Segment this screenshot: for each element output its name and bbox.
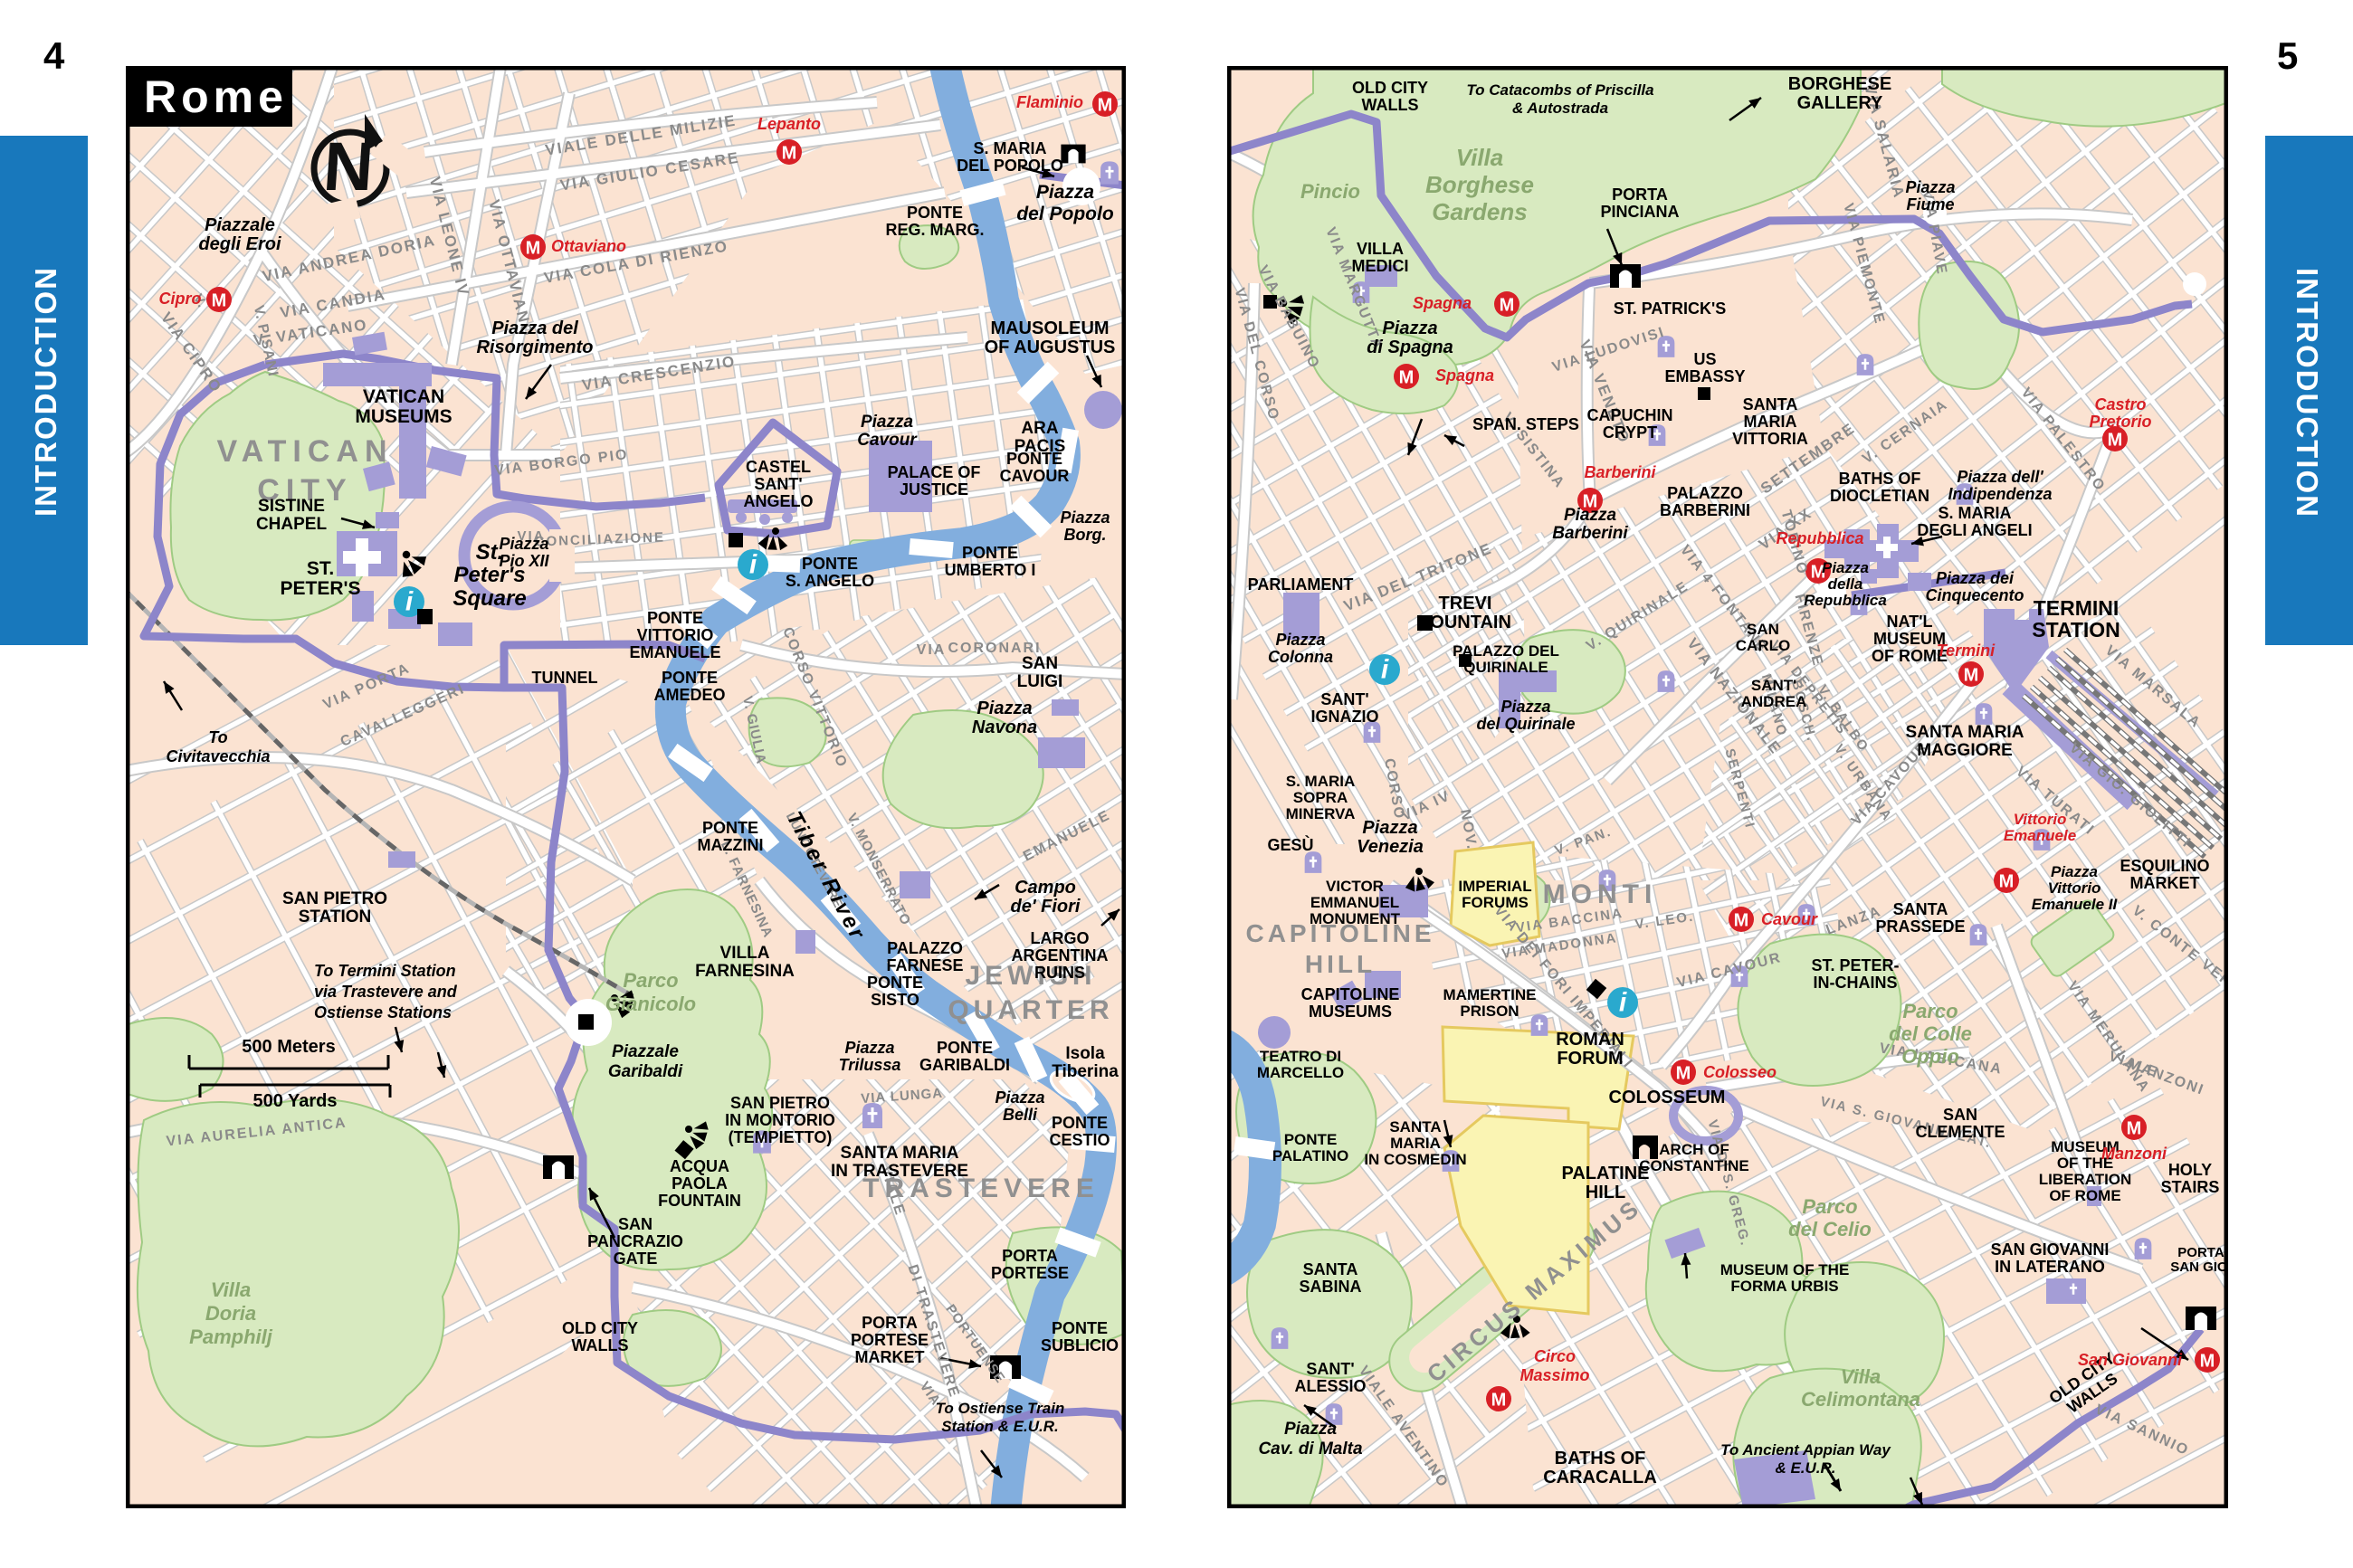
- svg-text:M: M: [1098, 95, 1113, 115]
- svg-text:OLD CITY: OLD CITY: [562, 1319, 638, 1337]
- svg-text:RUINS: RUINS: [1034, 964, 1085, 982]
- svg-text:VICTOR: VICTOR: [1326, 878, 1384, 895]
- svg-text:M: M: [1399, 367, 1415, 387]
- svg-text:MONTI: MONTI: [1543, 879, 1658, 909]
- svg-text:PALAZZO: PALAZZO: [1667, 484, 1743, 502]
- svg-text:S. ANGELO: S. ANGELO: [786, 572, 874, 590]
- svg-text:Piazza: Piazza: [1284, 1420, 1338, 1439]
- svg-text:SISTINE: SISTINE: [258, 497, 325, 516]
- svg-text:ANGELO: ANGELO: [743, 492, 813, 510]
- svg-text:SANTA MARIA: SANTA MARIA: [841, 1144, 959, 1163]
- svg-text:ST. PATRICK'S: ST. PATRICK'S: [1614, 299, 1727, 318]
- svg-text:PINCIANA: PINCIANA: [1600, 203, 1679, 221]
- svg-text:IMPERIAL: IMPERIAL: [1458, 878, 1531, 895]
- svg-text:PONTE: PONTE: [662, 669, 718, 687]
- svg-text:del Quirinale: del Quirinale: [1476, 715, 1575, 733]
- svg-text:Piazza: Piazza: [1822, 559, 1869, 576]
- svg-text:Cav. di Malta: Cav. di Malta: [1258, 1440, 1363, 1459]
- svg-text:PONTE: PONTE: [962, 544, 1018, 562]
- svg-text:Piazza dei: Piazza dei: [1936, 569, 2015, 587]
- svg-text:CAVOUR: CAVOUR: [1000, 467, 1070, 485]
- svg-text:SANTA: SANTA: [1893, 900, 1948, 918]
- svg-text:Termini: Termini: [1937, 641, 1996, 660]
- svg-text:via Trastevere and: via Trastevere and: [314, 983, 458, 1001]
- svg-text:Rome: Rome: [144, 71, 288, 122]
- svg-text:CAPUCHIN: CAPUCHIN: [1586, 406, 1672, 424]
- svg-text:Parco: Parco: [1902, 1000, 1958, 1022]
- svg-text:GALLERY: GALLERY: [1797, 93, 1883, 113]
- svg-text:PALAZZO: PALAZZO: [887, 939, 963, 957]
- svg-text:Ottaviano: Ottaviano: [551, 237, 626, 255]
- svg-text:Campo: Campo: [1015, 878, 1076, 898]
- svg-text:MUSEUMS: MUSEUMS: [355, 406, 452, 427]
- svg-text:GARIBALDI: GARIBALDI: [919, 1056, 1010, 1074]
- svg-text:VIA: VIA: [917, 642, 947, 658]
- svg-text:Pretorio: Pretorio: [2089, 413, 2151, 431]
- svg-text:AMEDEO: AMEDEO: [653, 686, 725, 704]
- svg-text:i: i: [1381, 654, 1389, 684]
- svg-text:i: i: [749, 549, 757, 579]
- svg-text:Piazzale: Piazzale: [612, 1042, 679, 1061]
- svg-text:M: M: [1999, 871, 2015, 891]
- svg-text:PALACE OF: PALACE OF: [888, 463, 981, 481]
- svg-text:LIBERATION: LIBERATION: [2039, 1171, 2132, 1188]
- svg-text:Piazza: Piazza: [995, 1088, 1044, 1107]
- svg-text:MAZZINI: MAZZINI: [698, 836, 764, 854]
- svg-text:PONTE: PONTE: [1284, 1131, 1338, 1148]
- svg-text:IN COSMEDIN: IN COSMEDIN: [1364, 1151, 1466, 1168]
- svg-text:STAIRS: STAIRS: [2161, 1178, 2220, 1196]
- svg-text:Isola: Isola: [1065, 1044, 1105, 1063]
- svg-text:SANT': SANT': [1320, 690, 1368, 708]
- svg-text:Borg.: Borg.: [1064, 526, 1107, 544]
- svg-text:IN LATERANO: IN LATERANO: [1995, 1258, 2105, 1276]
- svg-text:PORTA: PORTA: [862, 1314, 918, 1332]
- svg-text:Piazza: Piazza: [2051, 863, 2098, 880]
- svg-text:CESTIO: CESTIO: [1049, 1131, 1110, 1149]
- svg-text:i: i: [1619, 987, 1627, 1017]
- svg-text:ALESSIO: ALESSIO: [1294, 1377, 1366, 1395]
- svg-text:REG. MARG.: REG. MARG.: [885, 221, 984, 239]
- svg-text:FARNESE: FARNESE: [886, 956, 963, 974]
- svg-text:Piazza: Piazza: [1500, 698, 1550, 716]
- svg-text:FORUM: FORUM: [1557, 1049, 1623, 1069]
- svg-text:ST. PETER-: ST. PETER-: [1811, 956, 1899, 974]
- svg-text:PARLIAMENT: PARLIAMENT: [1248, 575, 1354, 594]
- svg-text:CHAPEL: CHAPEL: [256, 515, 328, 534]
- svg-text:Garibaldi: Garibaldi: [608, 1062, 683, 1081]
- svg-text:Gianicolo: Gianicolo: [605, 993, 696, 1015]
- svg-text:PETER'S: PETER'S: [280, 578, 360, 599]
- svg-text:To Ostiense Train: To Ostiense Train: [936, 1400, 1065, 1417]
- svg-text:MINERVA: MINERVA: [1286, 805, 1356, 822]
- svg-text:Cipro: Cipro: [159, 290, 202, 308]
- svg-text:US: US: [1693, 350, 1716, 368]
- svg-text:S. MARIA: S. MARIA: [1286, 773, 1356, 790]
- svg-text:SAN GIO.: SAN GIO.: [2170, 1259, 2228, 1275]
- svg-text:OF ROME: OF ROME: [2049, 1187, 2120, 1204]
- svg-text:(TEMPIETTO): (TEMPIETTO): [729, 1128, 833, 1146]
- svg-text:VILLA: VILLA: [1357, 240, 1404, 258]
- svg-text:VATICAN: VATICAN: [363, 386, 444, 407]
- svg-text:DEGLI ANGELI: DEGLI ANGELI: [1917, 521, 2032, 539]
- svg-text:MARKET: MARKET: [855, 1348, 925, 1366]
- svg-text:SAN PIETRO: SAN PIETRO: [282, 889, 387, 908]
- svg-text:Repubblica: Repubblica: [1804, 592, 1887, 609]
- svg-text:Villa: Villa: [211, 1278, 251, 1301]
- svg-text:BATHS OF: BATHS OF: [1555, 1449, 1646, 1468]
- svg-text:STATION: STATION: [299, 908, 372, 927]
- svg-text:TEATRO DI: TEATRO DI: [1260, 1048, 1341, 1065]
- svg-text:SAN PIETRO: SAN PIETRO: [730, 1094, 830, 1112]
- svg-text:IN MONTORIO: IN MONTORIO: [725, 1111, 835, 1129]
- svg-text:PORTESE: PORTESE: [851, 1331, 929, 1349]
- svg-text:500 Meters: 500 Meters: [242, 1037, 335, 1057]
- svg-text:M: M: [1676, 1063, 1691, 1083]
- svg-text:S. MARIA: S. MARIA: [1939, 504, 2012, 522]
- svg-text:VITTORIO: VITTORIO: [637, 626, 714, 644]
- svg-text:SANT': SANT': [1751, 677, 1796, 694]
- svg-text:SANTA MARIA: SANTA MARIA: [1906, 723, 2024, 742]
- svg-text:Vittorio: Vittorio: [2014, 811, 2067, 828]
- svg-text:GESÙ: GESÙ: [1267, 835, 1313, 854]
- svg-text:PONTE: PONTE: [1052, 1319, 1108, 1337]
- svg-text:Cavour: Cavour: [857, 431, 918, 450]
- svg-text:Repubblica: Repubblica: [1776, 529, 1863, 547]
- svg-text:Vittorio: Vittorio: [2048, 879, 2101, 897]
- svg-text:Piazza: Piazza: [861, 413, 914, 432]
- svg-text:CARACALLA: CARACALLA: [1543, 1468, 1657, 1487]
- svg-text:PAOLA: PAOLA: [672, 1174, 728, 1193]
- svg-text:SANTA: SANTA: [1743, 395, 1798, 413]
- svg-text:della: della: [1828, 575, 1863, 593]
- svg-text:Tiberina: Tiberina: [1052, 1062, 1119, 1081]
- svg-text:PONTE: PONTE: [867, 974, 923, 992]
- svg-text:MUSEUMS: MUSEUMS: [1309, 1003, 1392, 1021]
- svg-text:SANT': SANT': [754, 475, 802, 493]
- svg-text:IGNAZIO: IGNAZIO: [1311, 708, 1379, 726]
- svg-text:M: M: [1500, 295, 1515, 315]
- svg-text:OLD CITY: OLD CITY: [1352, 79, 1428, 97]
- svg-text:Pincio: Pincio: [1300, 180, 1360, 203]
- svg-text:PALATINO: PALATINO: [1272, 1147, 1348, 1164]
- svg-text:TUNNEL: TUNNEL: [532, 669, 598, 687]
- svg-text:PONTE: PONTE: [937, 1039, 993, 1057]
- svg-text:Pamphilj: Pamphilj: [189, 1326, 273, 1348]
- svg-text:EMANUELE: EMANUELE: [629, 643, 720, 661]
- svg-text:SOPRA: SOPRA: [1293, 789, 1348, 806]
- svg-text:Pio XII: Pio XII: [499, 552, 549, 570]
- svg-text:FOUNTAIN: FOUNTAIN: [658, 1192, 741, 1210]
- svg-text:PRASSEDE: PRASSEDE: [1875, 917, 1965, 936]
- svg-text:Barberini: Barberini: [1552, 524, 1628, 543]
- svg-text:Manzoni: Manzoni: [2101, 1145, 2167, 1163]
- svg-text:Venezia: Venezia: [1357, 837, 1424, 857]
- svg-text:ANDREA: ANDREA: [1741, 693, 1807, 710]
- svg-text:M: M: [1491, 1390, 1507, 1410]
- svg-text:MARIA: MARIA: [1744, 413, 1797, 431]
- svg-text:SAN: SAN: [618, 1215, 653, 1233]
- svg-text:Fiume: Fiume: [1906, 195, 1954, 214]
- svg-text:Villa: Villa: [1841, 1365, 1881, 1388]
- svg-text:FOUNTAIN: FOUNTAIN: [1419, 613, 1511, 632]
- svg-text:PONTE: PONTE: [802, 555, 858, 573]
- svg-text:Station & E.U.R.: Station & E.U.R.: [941, 1418, 1058, 1435]
- svg-text:OF AUGUSTUS: OF AUGUSTUS: [985, 337, 1116, 357]
- svg-text:& E.U.R.: & E.U.R.: [1775, 1459, 1835, 1477]
- svg-text:SAN: SAN: [1747, 621, 1779, 638]
- svg-text:CARLO: CARLO: [1736, 637, 1790, 654]
- svg-text:DIOCLETIAN: DIOCLETIAN: [1830, 487, 1929, 505]
- svg-text:SPAN. STEPS: SPAN. STEPS: [1472, 415, 1579, 433]
- svg-text:JUSTICE: JUSTICE: [900, 480, 968, 499]
- svg-text:Risorgimento: Risorgimento: [477, 337, 594, 357]
- svg-text:Spagna: Spagna: [1413, 294, 1472, 312]
- svg-text:CLEMENTE: CLEMENTE: [1916, 1123, 2005, 1141]
- svg-text:PONTE: PONTE: [1052, 1114, 1108, 1132]
- svg-text:ROMAN: ROMAN: [1556, 1030, 1624, 1050]
- svg-text:To: To: [208, 728, 227, 746]
- svg-text:degli Eroi: degli Eroi: [198, 234, 281, 254]
- svg-text:PALATINE: PALATINE: [1561, 1164, 1649, 1183]
- svg-text:PONTE: PONTE: [907, 204, 963, 222]
- svg-text:PRISON: PRISON: [1460, 1003, 1519, 1020]
- svg-text:Emanuele: Emanuele: [2004, 827, 2076, 844]
- svg-text:PONTE: PONTE: [647, 609, 703, 627]
- svg-text:SISTO: SISTO: [871, 991, 919, 1009]
- svg-text:M: M: [526, 238, 541, 258]
- svg-text:CASTEL: CASTEL: [746, 458, 811, 476]
- svg-text:SANT': SANT': [1306, 1360, 1354, 1378]
- svg-text:WALLS: WALLS: [1362, 96, 1419, 114]
- svg-text:MONUMENT: MONUMENT: [1310, 910, 1401, 927]
- svg-text:Oppio: Oppio: [1901, 1045, 1959, 1068]
- svg-text:EMBASSY: EMBASSY: [1664, 367, 1745, 385]
- svg-text:MARKET: MARKET: [2130, 874, 2200, 892]
- svg-text:Civitavecchia: Civitavecchia: [166, 747, 270, 765]
- svg-text:SAN: SAN: [1022, 654, 1058, 673]
- svg-text:Piazzale: Piazzale: [205, 215, 275, 235]
- svg-text:i: i: [405, 586, 414, 616]
- svg-text:del Colle: del Colle: [1889, 1022, 1972, 1045]
- svg-text:LARGO: LARGO: [1031, 929, 1090, 947]
- svg-text:LUIGI: LUIGI: [1017, 672, 1063, 691]
- svg-text:ST.: ST.: [307, 558, 334, 579]
- svg-text:DEL POPOLO: DEL POPOLO: [957, 157, 1063, 175]
- svg-text:PORTA: PORTA: [1002, 1247, 1058, 1265]
- svg-text:SABINA: SABINA: [1299, 1278, 1361, 1296]
- svg-text:MAGGIORE: MAGGIORE: [1917, 741, 2013, 760]
- svg-text:Barberini: Barberini: [1584, 463, 1656, 481]
- svg-text:Piazza: Piazza: [976, 698, 1032, 718]
- svg-text:SANTA: SANTA: [1303, 1260, 1358, 1278]
- svg-text:MUSEUM OF THE: MUSEUM OF THE: [1720, 1261, 1850, 1278]
- svg-text:UMBERTO I: UMBERTO I: [945, 561, 1036, 579]
- svg-text:IN TRASTEVERE: IN TRASTEVERE: [831, 1162, 968, 1181]
- svg-text:& Autostrada: & Autostrada: [1512, 100, 1608, 117]
- svg-text:Cavour: Cavour: [1761, 910, 1818, 928]
- svg-text:MUSEUM: MUSEUM: [1873, 630, 1946, 648]
- svg-text:M: M: [1734, 910, 1749, 930]
- svg-text:Piazza del: Piazza del: [491, 318, 578, 338]
- svg-text:Emanuele II: Emanuele II: [2032, 896, 2119, 913]
- svg-text:VITTORIA: VITTORIA: [1732, 430, 1808, 448]
- svg-text:ARGENTINA: ARGENTINA: [1012, 946, 1109, 965]
- svg-text:QUARTER: QUARTER: [948, 995, 1113, 1025]
- svg-text:Doria: Doria: [205, 1302, 256, 1325]
- svg-text:VILLA: VILLA: [720, 944, 770, 963]
- svg-text:Navona: Navona: [972, 717, 1037, 737]
- svg-text:VATICAN: VATICAN: [216, 434, 393, 469]
- svg-text:ARA: ARA: [1021, 419, 1058, 438]
- svg-text:M: M: [2108, 430, 2123, 450]
- svg-text:Flaminio: Flaminio: [1016, 93, 1083, 111]
- svg-text:FARNESINA: FARNESINA: [695, 962, 795, 981]
- svg-text:STATION: STATION: [2032, 618, 2120, 641]
- svg-text:PANCRAZIO: PANCRAZIO: [587, 1232, 683, 1250]
- svg-text:di Spagna: di Spagna: [1367, 337, 1453, 357]
- svg-text:CONSTANTINE: CONSTANTINE: [1639, 1157, 1749, 1174]
- svg-text:Celimontana: Celimontana: [1801, 1388, 1920, 1411]
- svg-text:Piazza: Piazza: [1275, 631, 1325, 649]
- svg-text:SAN GIOVANNI: SAN GIOVANNI: [1991, 1240, 2110, 1259]
- svg-text:Piazza: Piazza: [499, 535, 548, 553]
- svg-text:Borghese: Borghese: [1425, 171, 1534, 198]
- svg-text:BARBERINI: BARBERINI: [1660, 501, 1750, 519]
- svg-text:M: M: [2127, 1118, 2142, 1138]
- svg-text:Cinquecento: Cinquecento: [1925, 586, 2024, 604]
- svg-text:HILL: HILL: [1586, 1183, 1625, 1202]
- svg-text:Indipendenza: Indipendenza: [1948, 485, 2052, 503]
- svg-text:Parco: Parco: [623, 969, 678, 992]
- svg-text:MARIA: MARIA: [1390, 1135, 1441, 1152]
- svg-text:BORGHESE: BORGHESE: [1788, 74, 1891, 94]
- svg-text:Piazza: Piazza: [1362, 818, 1417, 838]
- svg-text:M: M: [1964, 665, 1979, 685]
- svg-text:Spagna: Spagna: [1435, 366, 1494, 385]
- svg-text:FORMA URBIS: FORMA URBIS: [1730, 1278, 1838, 1295]
- svg-text:IN-CHAINS: IN-CHAINS: [1814, 974, 1898, 992]
- svg-text:PORTESE: PORTESE: [991, 1264, 1069, 1282]
- svg-text:PORTA: PORTA: [2177, 1245, 2224, 1260]
- svg-text:Lepanto: Lepanto: [757, 115, 821, 133]
- svg-text:COLOSSEUM: COLOSSEUM: [1609, 1088, 1726, 1107]
- svg-text:de' Fiori: de' Fiori: [1011, 897, 1081, 917]
- svg-text:Castro: Castro: [2094, 395, 2146, 413]
- svg-text:MEDICI: MEDICI: [1352, 257, 1409, 275]
- svg-text:TREVI: TREVI: [1439, 594, 1492, 613]
- svg-text:Massimo: Massimo: [1519, 1366, 1589, 1384]
- svg-text:FORUMS: FORUMS: [1462, 894, 1529, 911]
- svg-text:Belli: Belli: [1003, 1106, 1038, 1124]
- svg-text:Square: Square: [452, 586, 526, 611]
- svg-text:WALLS: WALLS: [572, 1336, 629, 1354]
- svg-text:M: M: [782, 143, 797, 163]
- svg-text:HOLY: HOLY: [2168, 1161, 2212, 1179]
- svg-text:Piazza: Piazza: [1564, 506, 1617, 525]
- svg-text:QUIRINALE: QUIRINALE: [1463, 659, 1548, 676]
- svg-text:500 Yards: 500 Yards: [252, 1091, 337, 1111]
- svg-text:ARCH OF: ARCH OF: [1659, 1141, 1729, 1158]
- svg-text:Colonna: Colonna: [1268, 648, 1333, 666]
- svg-text:del Popolo: del Popolo: [1016, 204, 1114, 224]
- svg-text:ACQUA: ACQUA: [670, 1157, 729, 1175]
- svg-text:PALAZZO DEL: PALAZZO DEL: [1453, 642, 1559, 660]
- svg-text:Trilussa: Trilussa: [839, 1056, 901, 1074]
- svg-text:Parco: Parco: [1802, 1195, 1857, 1218]
- svg-text:Villa: Villa: [1456, 144, 1504, 171]
- svg-text:Circo: Circo: [1534, 1347, 1576, 1365]
- svg-text:M: M: [2200, 1351, 2215, 1371]
- svg-text:Ostiense Stations: Ostiense Stations: [314, 1003, 452, 1022]
- svg-text:PONTE: PONTE: [702, 819, 758, 837]
- svg-text:To Termini Station: To Termini Station: [314, 962, 456, 980]
- svg-text:MAMERTINE: MAMERTINE: [1443, 986, 1537, 1003]
- svg-text:MARCELLO: MARCELLO: [1257, 1064, 1344, 1081]
- svg-text:CRYPT: CRYPT: [1603, 423, 1657, 442]
- svg-text:S. MARIA: S. MARIA: [974, 139, 1047, 157]
- svg-text:Piazza dell': Piazza dell': [1957, 468, 2043, 486]
- svg-text:Piazza: Piazza: [1905, 178, 1955, 196]
- svg-text:GATE: GATE: [614, 1250, 658, 1268]
- svg-text:NAT'L: NAT'L: [1887, 613, 1933, 631]
- svg-text:PONTE: PONTE: [1006, 450, 1062, 468]
- svg-text:EMMANUEL: EMMANUEL: [1310, 894, 1399, 911]
- svg-text:del Celio: del Celio: [1788, 1218, 1872, 1240]
- svg-text:PORTA: PORTA: [1612, 185, 1668, 204]
- svg-text:SUBLICIO: SUBLICIO: [1041, 1336, 1119, 1354]
- svg-text:SAN: SAN: [1943, 1106, 1977, 1124]
- svg-text:To Catacombs of Priscilla: To Catacombs of Priscilla: [1466, 81, 1653, 99]
- svg-text:HILL: HILL: [1305, 950, 1376, 978]
- svg-text:MAUSOLEUM: MAUSOLEUM: [990, 318, 1109, 338]
- svg-text:Gardens: Gardens: [1432, 198, 1528, 225]
- svg-text:San Giovanni: San Giovanni: [2078, 1351, 2183, 1369]
- svg-text:SANTA: SANTA: [1389, 1118, 1441, 1136]
- svg-text:Piazza: Piazza: [1036, 182, 1095, 203]
- svg-text:Piazza: Piazza: [1382, 318, 1437, 338]
- svg-text:Piazza: Piazza: [1060, 508, 1110, 527]
- svg-text:Piazza: Piazza: [844, 1039, 894, 1057]
- svg-text:BATHS OF: BATHS OF: [1839, 470, 1921, 488]
- svg-text:CAPITOLINE: CAPITOLINE: [1301, 985, 1400, 1003]
- svg-text:ESQUILINO: ESQUILINO: [2120, 857, 2209, 875]
- svg-text:To Ancient Appian Way: To Ancient Appian Way: [1720, 1441, 1891, 1459]
- svg-text:Colosseo: Colosseo: [1703, 1063, 1777, 1081]
- svg-text:M: M: [212, 290, 227, 310]
- svg-text:TERMINI: TERMINI: [2034, 596, 2120, 620]
